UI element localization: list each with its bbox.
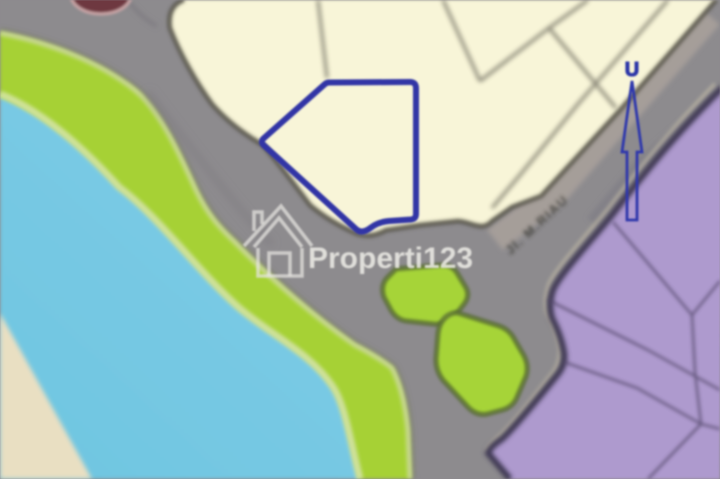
svg-text:U: U (625, 59, 639, 81)
svg-text:Properti123: Properti123 (308, 242, 473, 275)
